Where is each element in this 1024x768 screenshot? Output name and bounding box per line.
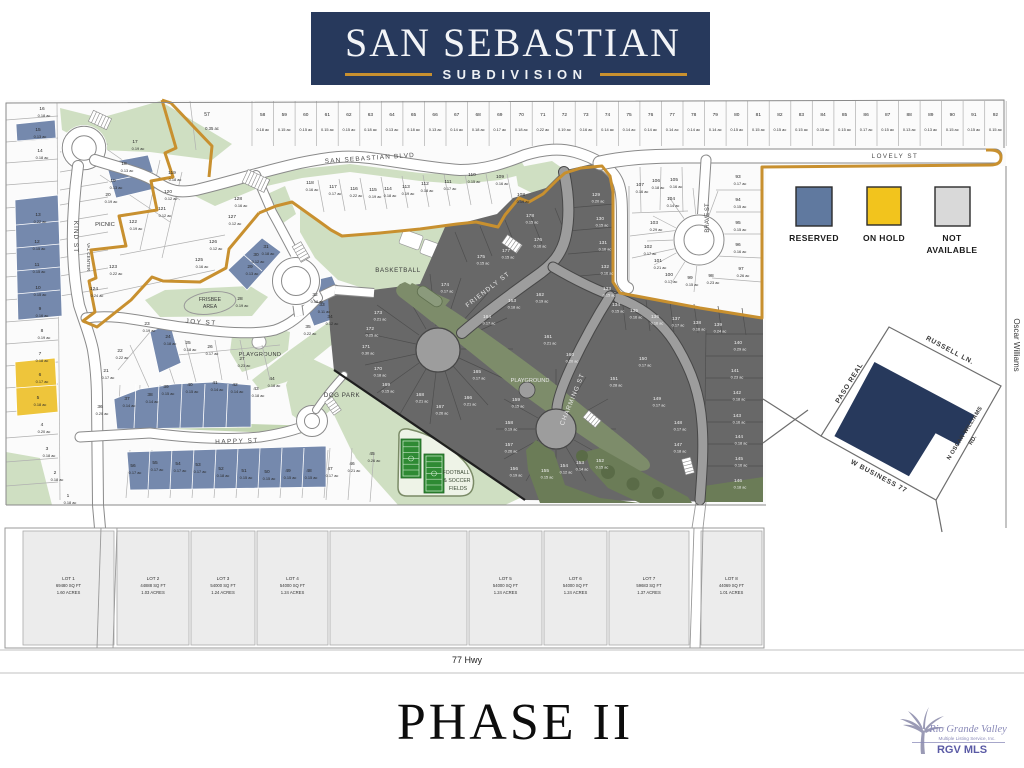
svg-text:102: 102 — [644, 244, 652, 250]
svg-text:101: 101 — [654, 258, 662, 264]
svg-text:130: 130 — [596, 216, 604, 222]
svg-text:VAL CENTER: VAL CENTER — [86, 243, 91, 272]
svg-text:0.15 ac: 0.15 ac — [284, 475, 297, 480]
svg-text:Multiple Listing Service, Inc.: Multiple Listing Service, Inc. — [939, 736, 996, 741]
svg-text:148: 148 — [674, 420, 682, 426]
svg-text:54000 SQ FT: 54000 SQ FT — [563, 583, 589, 588]
svg-text:0.22 ac: 0.22 ac — [350, 193, 363, 198]
svg-text:0.14 ac: 0.14 ac — [667, 203, 680, 208]
svg-text:103: 103 — [650, 220, 658, 226]
svg-text:0.14 ac: 0.14 ac — [450, 127, 463, 132]
svg-text:0.19 ac: 0.19 ac — [517, 199, 530, 204]
svg-text:0.18 ac: 0.18 ac — [384, 193, 397, 198]
svg-text:0.16 ac: 0.16 ac — [670, 184, 683, 189]
svg-text:164: 164 — [483, 314, 491, 320]
svg-text:165: 165 — [473, 369, 481, 375]
svg-text:69480 SQ FT: 69480 SQ FT — [56, 583, 82, 588]
svg-text:0.18 ac: 0.18 ac — [38, 113, 51, 118]
svg-text:132: 132 — [601, 264, 609, 270]
svg-text:160: 160 — [566, 352, 574, 358]
svg-text:158: 158 — [505, 420, 513, 426]
svg-text:RGV MLS: RGV MLS — [937, 744, 987, 756]
svg-text:0.18 ac: 0.18 ac — [364, 127, 377, 132]
svg-text:135: 135 — [630, 308, 638, 314]
svg-text:0.14 ac: 0.14 ac — [576, 467, 589, 472]
svg-text:115: 115 — [369, 187, 377, 193]
svg-text:0.14 ac: 0.14 ac — [211, 387, 224, 392]
svg-text:31: 31 — [263, 244, 269, 250]
svg-text:0.15 ac: 0.15 ac — [946, 127, 959, 132]
svg-text:112: 112 — [421, 181, 429, 187]
svg-text:0.12 ac: 0.12 ac — [165, 196, 178, 201]
svg-text:0.17 ac: 0.17 ac — [174, 468, 187, 473]
svg-text:17: 17 — [132, 139, 138, 145]
svg-text:0.16 ac: 0.16 ac — [306, 187, 319, 192]
svg-text:1.60 ACRES: 1.60 ACRES — [57, 590, 81, 595]
svg-text:5: 5 — [37, 395, 40, 401]
svg-text:29: 29 — [247, 264, 253, 270]
svg-text:128: 128 — [234, 196, 242, 202]
svg-text:79: 79 — [713, 112, 719, 118]
svg-text:0.13 ac: 0.13 ac — [386, 127, 399, 132]
svg-text:0.16 ac: 0.16 ac — [636, 189, 649, 194]
svg-text:0.12 ac: 0.12 ac — [229, 221, 242, 226]
svg-text:0.15 ac: 0.15 ac — [734, 204, 747, 209]
svg-text:151: 151 — [610, 376, 618, 382]
svg-text:20: 20 — [105, 192, 111, 198]
svg-text:0.18 ac: 0.18 ac — [421, 188, 434, 193]
svg-text:80: 80 — [734, 112, 740, 118]
svg-text:11: 11 — [35, 262, 40, 268]
svg-text:0.18 ac: 0.18 ac — [34, 402, 47, 407]
svg-text:92: 92 — [993, 112, 999, 118]
svg-text:SAN SEBASTIAN: SAN SEBASTIAN — [345, 20, 681, 65]
svg-text:140: 140 — [734, 340, 742, 346]
svg-text:0.17 ac: 0.17 ac — [326, 473, 339, 478]
svg-text:142: 142 — [733, 390, 741, 396]
svg-text:0.18 ac: 0.18 ac — [268, 383, 281, 388]
svg-text:133: 133 — [603, 286, 611, 292]
svg-text:0.21 ac: 0.21 ac — [544, 341, 557, 346]
svg-text:AVAILABLE: AVAILABLE — [927, 245, 978, 255]
svg-text:55: 55 — [152, 460, 158, 466]
svg-text:0.15 ac: 0.15 ac — [512, 404, 525, 409]
svg-text:0.13 ac: 0.13 ac — [429, 127, 442, 132]
svg-text:145: 145 — [735, 456, 743, 462]
svg-text:0.16 ac: 0.16 ac — [630, 315, 643, 320]
svg-text:10: 10 — [35, 285, 41, 291]
svg-text:68: 68 — [476, 112, 482, 118]
svg-text:124: 124 — [90, 286, 98, 292]
svg-text:PLAYGROUND: PLAYGROUND — [239, 352, 282, 358]
svg-text:0.14 ac: 0.14 ac — [687, 127, 700, 132]
svg-text:0.17 ac: 0.17 ac — [329, 191, 342, 196]
svg-text:0.18 ac: 0.18 ac — [184, 347, 197, 352]
svg-text:0.18 ac: 0.18 ac — [734, 485, 747, 490]
svg-text:1.24 ACRES: 1.24 ACRES — [494, 590, 518, 595]
svg-text:0.15 ac: 0.15 ac — [596, 465, 609, 470]
svg-text:54000 SQ FT: 54000 SQ FT — [280, 583, 306, 588]
svg-text:RESERVED: RESERVED — [789, 233, 839, 243]
svg-text:0.16 ac: 0.16 ac — [534, 244, 547, 249]
svg-text:0.29 ac: 0.29 ac — [734, 347, 747, 352]
svg-text:0.17 ac: 0.17 ac — [36, 379, 49, 384]
svg-text:78: 78 — [691, 112, 697, 118]
svg-text:0.23 ac: 0.23 ac — [731, 375, 744, 380]
svg-text:64: 64 — [389, 112, 395, 118]
svg-text:0.17 ac: 0.17 ac — [653, 403, 666, 408]
svg-text:0.18 ac: 0.18 ac — [256, 127, 269, 132]
svg-text:0.18 ac: 0.18 ac — [508, 305, 521, 310]
svg-text:LOT 4: LOT 4 — [286, 576, 299, 581]
svg-text:0.13 ac: 0.13 ac — [110, 185, 123, 190]
svg-text:0.16 ac: 0.16 ac — [693, 327, 706, 332]
svg-text:9: 9 — [39, 306, 42, 312]
svg-text:168: 168 — [416, 392, 424, 398]
svg-text:19: 19 — [110, 178, 116, 184]
svg-text:DOG PARK: DOG PARK — [324, 392, 361, 399]
svg-text:0.22 ac: 0.22 ac — [536, 127, 549, 132]
svg-text:0.15 ac: 0.15 ac — [502, 255, 515, 260]
svg-text:36: 36 — [97, 404, 103, 410]
svg-text:0.17 ac: 0.17 ac — [493, 127, 506, 132]
svg-text:0.15 ac: 0.15 ac — [686, 282, 699, 287]
svg-text:0.18 ac: 0.18 ac — [164, 341, 177, 346]
svg-text:NOT: NOT — [942, 233, 962, 243]
svg-text:161: 161 — [544, 334, 552, 340]
svg-text:61: 61 — [325, 112, 331, 118]
svg-text:0.18 ac: 0.18 ac — [64, 500, 77, 505]
svg-text:0.15 ac: 0.15 ac — [967, 127, 980, 132]
svg-text:0.15 ac: 0.15 ac — [299, 127, 312, 132]
svg-text:95: 95 — [735, 220, 741, 226]
svg-text:0.17 ac: 0.17 ac — [734, 181, 747, 186]
svg-text:0.18 ac: 0.18 ac — [51, 477, 64, 482]
svg-text:83: 83 — [799, 112, 805, 118]
svg-text:37: 37 — [124, 396, 130, 402]
svg-text:0.17 ac: 0.17 ac — [129, 470, 142, 475]
svg-text:159: 159 — [512, 397, 520, 403]
svg-text:0.14 ac: 0.14 ac — [644, 127, 657, 132]
svg-text:0.12 ac: 0.12 ac — [560, 470, 573, 475]
svg-text:156: 156 — [510, 466, 518, 472]
svg-text:43: 43 — [253, 386, 259, 392]
svg-text:0.14 ac: 0.14 ac — [709, 127, 722, 132]
svg-text:0.12 ac: 0.12 ac — [159, 213, 172, 218]
svg-text:LOT 1: LOT 1 — [62, 576, 75, 581]
svg-text:25: 25 — [185, 340, 191, 346]
svg-text:12: 12 — [34, 239, 40, 245]
svg-text:0.21 ac: 0.21 ac — [654, 265, 667, 270]
svg-text:0.16 ac: 0.16 ac — [733, 420, 746, 425]
svg-text:77 Hwy: 77 Hwy — [452, 655, 483, 665]
svg-text:108: 108 — [517, 192, 525, 198]
svg-text:0.17 ac: 0.17 ac — [483, 321, 496, 326]
svg-text:0.14 ac: 0.14 ac — [123, 403, 136, 408]
svg-text:82: 82 — [777, 112, 783, 118]
svg-text:0.18 ac: 0.18 ac — [652, 185, 665, 190]
svg-text:59683 SQ FT: 59683 SQ FT — [636, 583, 662, 588]
svg-text:118: 118 — [306, 180, 314, 186]
svg-text:6: 6 — [39, 372, 42, 378]
svg-text:175: 175 — [477, 254, 485, 260]
svg-text:0.13 ac: 0.13 ac — [903, 127, 916, 132]
svg-text:PLAYGROUND: PLAYGROUND — [511, 378, 550, 384]
svg-text:0.13 ac: 0.13 ac — [246, 271, 259, 276]
svg-text:18: 18 — [121, 161, 127, 167]
svg-text:129: 129 — [592, 192, 600, 198]
svg-text:0.19 ac: 0.19 ac — [143, 328, 156, 333]
svg-text:0.30 ac: 0.30 ac — [362, 351, 375, 356]
svg-text:0.26 ac: 0.26 ac — [368, 458, 381, 463]
svg-text:76: 76 — [648, 112, 654, 118]
svg-text:LOVELY ST: LOVELY ST — [872, 153, 919, 160]
svg-text:86: 86 — [863, 112, 869, 118]
svg-text:53: 53 — [195, 462, 201, 468]
svg-text:0.18 ac: 0.18 ac — [252, 393, 265, 398]
svg-text:47: 47 — [327, 466, 333, 472]
svg-text:27: 27 — [239, 356, 245, 362]
svg-text:0.26 ac: 0.26 ac — [505, 449, 518, 454]
svg-text:0.15 ac: 0.15 ac — [343, 127, 356, 132]
svg-text:0.14 ac: 0.14 ac — [146, 399, 159, 404]
svg-text:8: 8 — [41, 328, 44, 334]
svg-text:99: 99 — [687, 275, 693, 281]
svg-text:167: 167 — [436, 404, 444, 410]
svg-text:LOT 5: LOT 5 — [499, 576, 512, 581]
svg-text:84: 84 — [820, 112, 826, 118]
svg-text:0.17 ac: 0.17 ac — [151, 467, 164, 472]
svg-text:94: 94 — [735, 197, 741, 203]
svg-text:0.19 ac: 0.19 ac — [536, 299, 549, 304]
svg-text:FIELDS: FIELDS — [449, 486, 468, 492]
svg-text:141: 141 — [731, 368, 739, 374]
svg-text:0.16 ac: 0.16 ac — [599, 247, 612, 252]
svg-text:131: 131 — [599, 240, 607, 246]
svg-text:75: 75 — [626, 112, 632, 118]
svg-text:153: 153 — [576, 460, 584, 466]
svg-text:120: 120 — [164, 189, 172, 195]
svg-text:0.19 ac: 0.19 ac — [38, 335, 51, 340]
svg-text:AREA: AREA — [203, 304, 218, 310]
svg-text:0.19 ac: 0.19 ac — [132, 146, 145, 151]
svg-text:157: 157 — [505, 442, 513, 448]
svg-text:45: 45 — [369, 451, 375, 457]
svg-text:0.19 ac: 0.19 ac — [105, 199, 118, 204]
svg-text:134: 134 — [612, 302, 620, 308]
svg-text:0.14 ac: 0.14 ac — [666, 127, 679, 132]
svg-text:154: 154 — [560, 463, 568, 469]
svg-text:32: 32 — [312, 292, 318, 298]
svg-text:100: 100 — [665, 272, 673, 278]
svg-text:0.14 ac: 0.14 ac — [601, 127, 614, 132]
svg-text:0.22 ac: 0.22 ac — [34, 219, 47, 224]
svg-text:90: 90 — [950, 112, 956, 118]
svg-text:0.17 ac: 0.17 ac — [672, 323, 685, 328]
svg-text:0.22 ac: 0.22 ac — [304, 331, 317, 336]
svg-text:0.16 ac: 0.16 ac — [651, 321, 664, 326]
svg-text:0.15 ac: 0.15 ac — [734, 227, 747, 232]
svg-text:54000 SQ FT: 54000 SQ FT — [210, 583, 236, 588]
svg-text:177: 177 — [502, 248, 510, 254]
svg-text:0.19 ac: 0.19 ac — [130, 226, 143, 231]
svg-text:51: 51 — [241, 468, 247, 474]
svg-text:0.15 ac: 0.15 ac — [989, 127, 1002, 132]
svg-text:0.15 ac: 0.15 ac — [795, 127, 808, 132]
svg-text:178: 178 — [526, 213, 534, 219]
svg-text:0.17 ac: 0.17 ac — [206, 351, 219, 356]
svg-text:3: 3 — [46, 446, 49, 452]
svg-text:0.20 ac: 0.20 ac — [592, 199, 605, 204]
svg-text:59: 59 — [282, 112, 288, 118]
svg-text:0.18 ac: 0.18 ac — [217, 473, 230, 478]
svg-text:0.12 ac: 0.12 ac — [210, 246, 223, 251]
svg-text:0.17 ac: 0.17 ac — [665, 279, 678, 284]
svg-text:163: 163 — [508, 298, 516, 304]
svg-text:KIND ST: KIND ST — [72, 221, 79, 253]
svg-text:88: 88 — [907, 112, 913, 118]
svg-text:0.20 ac: 0.20 ac — [38, 429, 51, 434]
svg-text:0.21 ac: 0.21 ac — [374, 317, 387, 322]
svg-text:28: 28 — [237, 296, 243, 302]
svg-text:155: 155 — [541, 468, 549, 474]
svg-text:BRAVE ST: BRAVE ST — [705, 203, 711, 233]
svg-text:1.01 ACRES: 1.01 ACRES — [720, 590, 744, 595]
svg-text:23: 23 — [144, 321, 150, 327]
svg-text:0.18 ac: 0.18 ac — [407, 127, 420, 132]
svg-text:63: 63 — [368, 112, 374, 118]
svg-text:81: 81 — [756, 112, 762, 118]
svg-text:0.35 ac: 0.35 ac — [205, 126, 219, 131]
svg-text:PHASE II: PHASE II — [397, 694, 633, 751]
svg-text:93: 93 — [735, 174, 741, 180]
svg-text:97: 97 — [738, 266, 744, 272]
svg-text:0.15 ac: 0.15 ac — [186, 389, 199, 394]
svg-text:44: 44 — [269, 376, 275, 382]
svg-text:138: 138 — [693, 320, 701, 326]
svg-text:0.20 ac: 0.20 ac — [566, 359, 579, 364]
svg-text:2: 2 — [54, 470, 57, 476]
svg-text:SUBDIVISION: SUBDIVISION — [442, 67, 587, 82]
svg-text:0.17 ac: 0.17 ac — [194, 469, 207, 474]
svg-text:0.12 ac: 0.12 ac — [326, 321, 339, 326]
svg-text:166: 166 — [464, 395, 472, 401]
svg-text:136: 136 — [651, 314, 659, 320]
svg-text:0.16 ac: 0.16 ac — [580, 127, 593, 132]
svg-text:FOOTBALL: FOOTBALL — [442, 470, 469, 476]
svg-text:73: 73 — [583, 112, 589, 118]
svg-text:91: 91 — [971, 112, 977, 118]
svg-text:LOT 2: LOT 2 — [147, 576, 160, 581]
svg-text:4: 4 — [41, 422, 44, 428]
svg-text:0.15 ac: 0.15 ac — [278, 127, 291, 132]
svg-text:0.13 ac: 0.13 ac — [121, 168, 134, 173]
svg-text:85: 85 — [842, 112, 848, 118]
svg-text:0.21 ac: 0.21 ac — [464, 402, 477, 407]
svg-text:0.24 ac: 0.24 ac — [91, 293, 104, 298]
svg-text:66: 66 — [432, 112, 438, 118]
svg-text:0.18 ac: 0.18 ac — [43, 453, 56, 458]
svg-text:0.18 ac: 0.18 ac — [36, 358, 49, 363]
svg-text:7: 7 — [39, 351, 42, 357]
svg-text:0.14 ac: 0.14 ac — [623, 127, 636, 132]
svg-text:0.15 ac: 0.15 ac — [603, 293, 616, 298]
svg-text:146: 146 — [734, 478, 742, 484]
svg-text:62: 62 — [346, 112, 352, 118]
svg-text:0.15 ac: 0.15 ac — [33, 269, 46, 274]
svg-text:Oscar Williams: Oscar Williams — [1012, 318, 1021, 371]
svg-text:39: 39 — [163, 384, 169, 390]
svg-text:56: 56 — [130, 463, 136, 469]
svg-text:0.13 ac: 0.13 ac — [924, 127, 937, 132]
svg-text:171: 171 — [362, 344, 370, 350]
svg-text:0.15 ac: 0.15 ac — [526, 220, 539, 225]
svg-text:0.19 ac: 0.19 ac — [558, 127, 571, 132]
svg-text:BASKETBALL: BASKETBALL — [375, 267, 421, 274]
svg-text:0.18 ac: 0.18 ac — [674, 449, 687, 454]
svg-text:LOT 7: LOT 7 — [643, 576, 656, 581]
svg-text:0.13 ac: 0.13 ac — [34, 134, 47, 139]
svg-text:0.19 ac: 0.19 ac — [369, 194, 382, 199]
svg-text:52: 52 — [218, 466, 224, 472]
svg-text:98: 98 — [708, 273, 714, 279]
svg-text:0.18 ac: 0.18 ac — [374, 373, 387, 378]
svg-text:0.15 ac: 0.15 ac — [596, 223, 609, 228]
svg-text:0.15 ac: 0.15 ac — [477, 261, 490, 266]
svg-text:173: 173 — [374, 310, 382, 316]
svg-text:0.17 ac: 0.17 ac — [860, 127, 873, 132]
svg-text:1.37 ACRES: 1.37 ACRES — [637, 590, 661, 595]
svg-text:127: 127 — [228, 214, 236, 220]
svg-text:72: 72 — [562, 112, 568, 118]
svg-text:1.03 ACRES: 1.03 ACRES — [141, 590, 165, 595]
svg-text:0.16 ac: 0.16 ac — [601, 271, 614, 276]
svg-text:38: 38 — [147, 392, 153, 398]
svg-text:116: 116 — [350, 186, 358, 192]
svg-text:0.21 ac: 0.21 ac — [348, 468, 361, 473]
svg-text:150: 150 — [639, 356, 647, 362]
svg-text:LOT 8: LOT 8 — [725, 576, 738, 581]
svg-text:0.15 ac: 0.15 ac — [817, 127, 830, 132]
svg-text:111: 111 — [444, 179, 452, 185]
svg-text:54000 SQ FT: 54000 SQ FT — [493, 583, 519, 588]
svg-text:174: 174 — [441, 282, 449, 288]
svg-text:0.15 ac: 0.15 ac — [382, 389, 395, 394]
svg-text:0.15 ac: 0.15 ac — [305, 475, 318, 480]
svg-text:77: 77 — [669, 112, 675, 118]
svg-text:139: 139 — [714, 322, 722, 328]
svg-text:0.15 ac: 0.15 ac — [612, 309, 625, 314]
svg-text:0.17 ac: 0.17 ac — [441, 289, 454, 294]
svg-text:137: 137 — [672, 316, 680, 322]
svg-text:67: 67 — [454, 112, 460, 118]
svg-text:30: 30 — [253, 252, 259, 258]
svg-text:16: 16 — [39, 106, 45, 112]
svg-text:147: 147 — [674, 442, 682, 448]
svg-text:0.26 ac: 0.26 ac — [737, 273, 750, 278]
svg-text:0.20 ac: 0.20 ac — [96, 411, 109, 416]
svg-text:0.15 ac: 0.15 ac — [881, 127, 894, 132]
svg-text:0.28 ac: 0.28 ac — [610, 383, 623, 388]
svg-text:0.18 ac: 0.18 ac — [735, 441, 748, 446]
svg-text:113: 113 — [402, 184, 410, 190]
svg-text:170: 170 — [374, 366, 382, 372]
svg-text:60: 60 — [303, 112, 309, 118]
svg-text:69: 69 — [497, 112, 503, 118]
svg-text:58: 58 — [260, 112, 266, 118]
svg-text:0.18 ac: 0.18 ac — [515, 127, 528, 132]
svg-text:13: 13 — [35, 212, 41, 218]
